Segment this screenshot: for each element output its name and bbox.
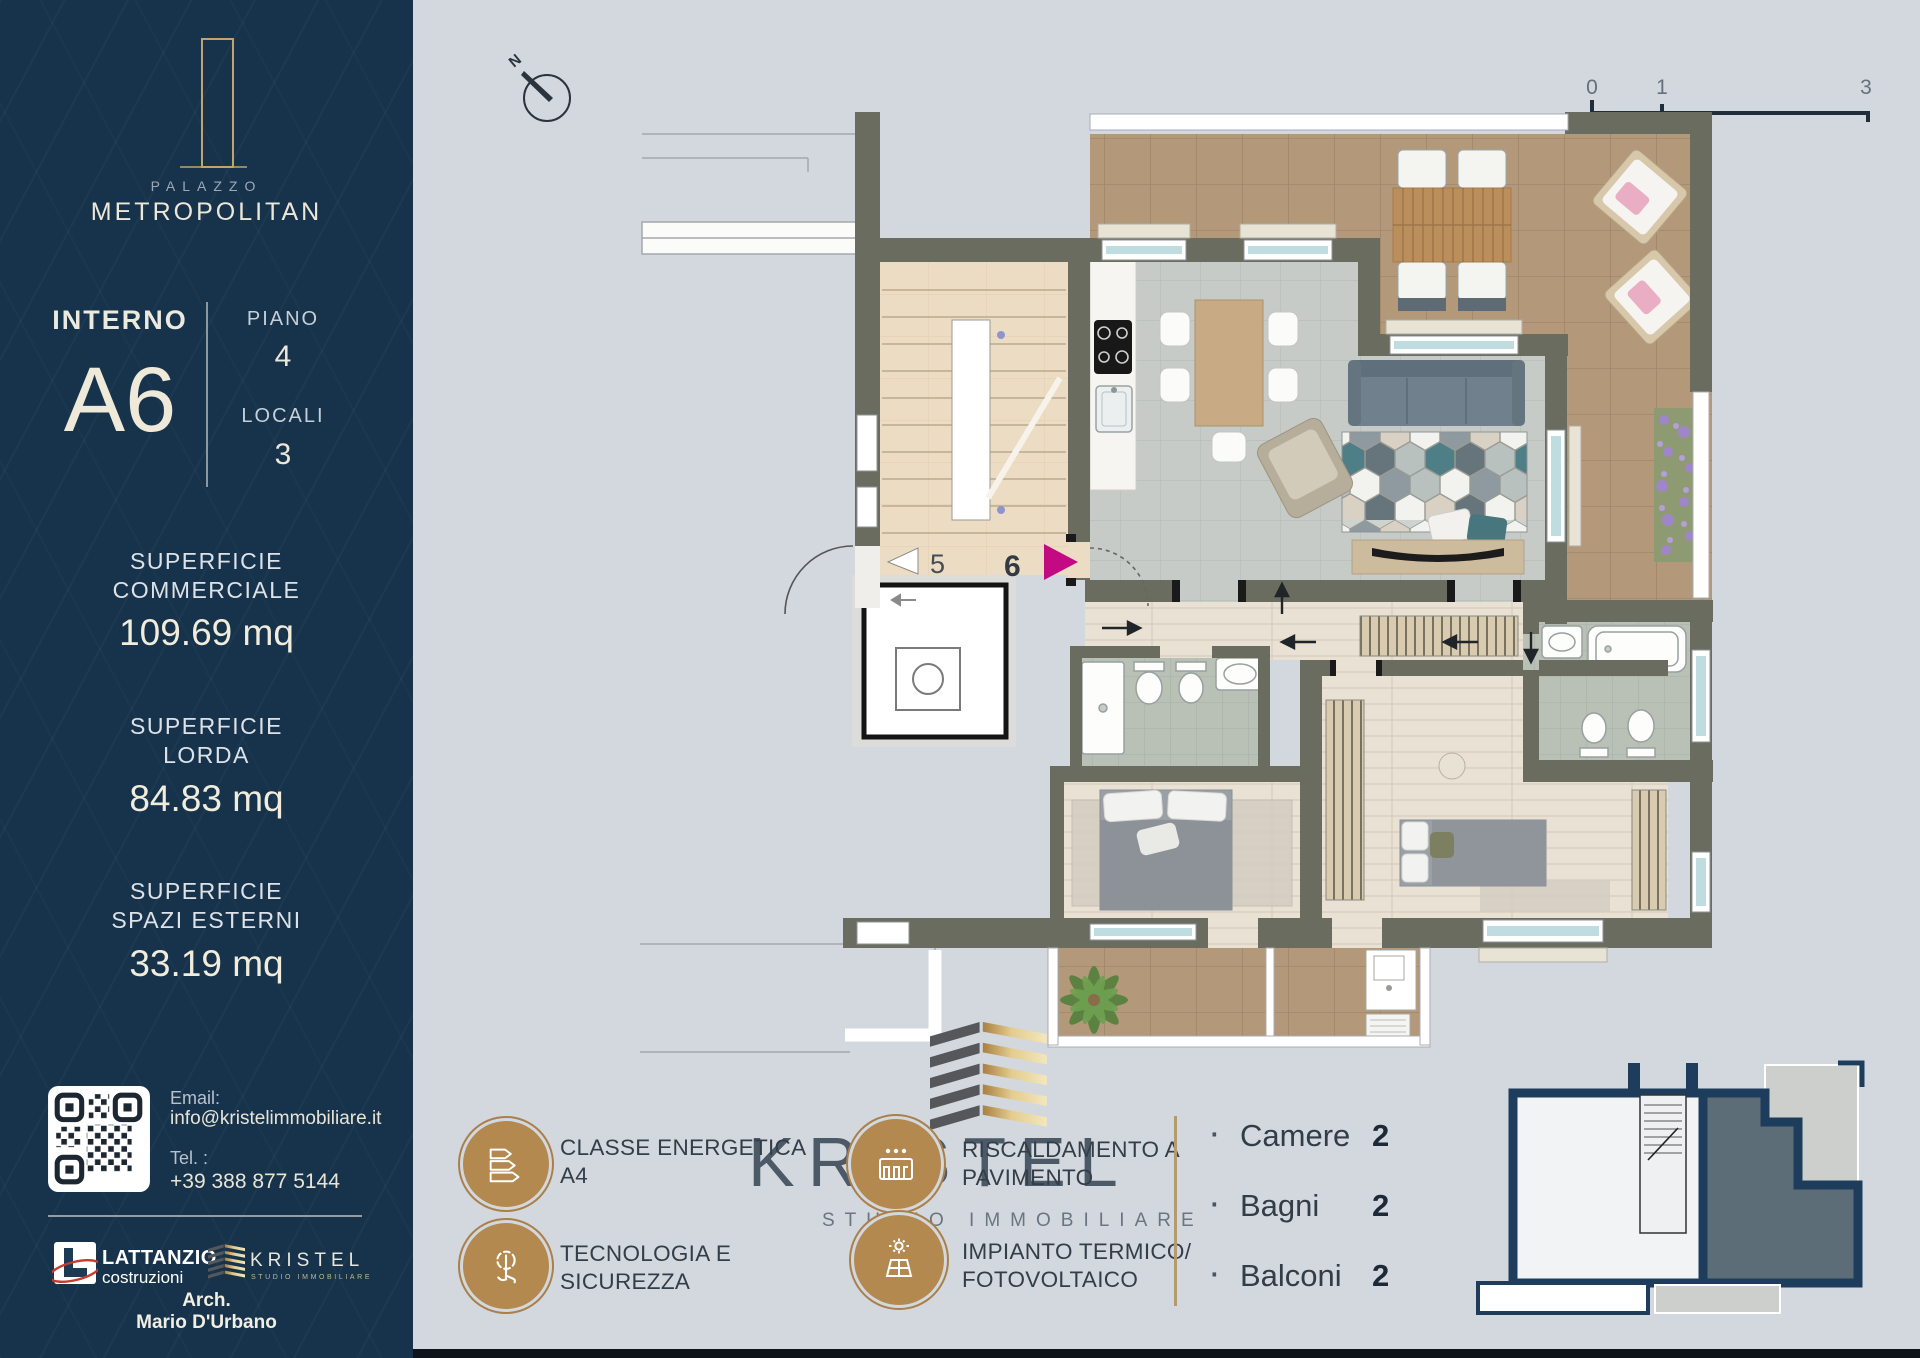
feature-energy-label: CLASSE ENERGETICAA4: [560, 1134, 806, 1190]
stats-divider: [1174, 1116, 1177, 1306]
feature-solar-label: IMPIANTO TERMICO/FOTOVOLTAICO: [962, 1238, 1191, 1294]
key-balcony: [1478, 1283, 1648, 1313]
key-stairs: [1640, 1095, 1686, 1233]
feature-security-label: TECNOLOGIA ESICUREZZA: [560, 1240, 731, 1296]
solar-badge: [854, 1215, 944, 1305]
kristel-building-icon: [905, 1022, 1075, 1134]
energy-class-badge: [463, 1121, 549, 1207]
energy-class-icon: [483, 1141, 529, 1187]
solar-panel-icon: [875, 1236, 923, 1284]
stat-bagni: · Bagni 2: [1204, 1188, 1464, 1228]
touch-security-icon: [483, 1243, 529, 1289]
floor-heating-badge: [851, 1119, 941, 1209]
feature-heating-label: RISCALDAMENTO APAVIMENTO: [962, 1136, 1180, 1192]
brochure-page: PALAZZO METROPOLITAN INTERNO A6 PIANO 4 …: [0, 0, 1920, 1358]
bullet: ·: [1208, 1252, 1221, 1295]
tech-security-badge: [463, 1223, 549, 1309]
bullet: ·: [1208, 1112, 1221, 1155]
bottom-bar: [413, 1349, 1920, 1358]
bullet: ·: [1208, 1182, 1221, 1225]
floor-heating-icon: [872, 1140, 920, 1188]
stat-balconi: · Balconi 2: [1204, 1258, 1464, 1298]
key-balcony: [1655, 1285, 1780, 1313]
stat-camere: · Camere 2: [1204, 1118, 1464, 1158]
